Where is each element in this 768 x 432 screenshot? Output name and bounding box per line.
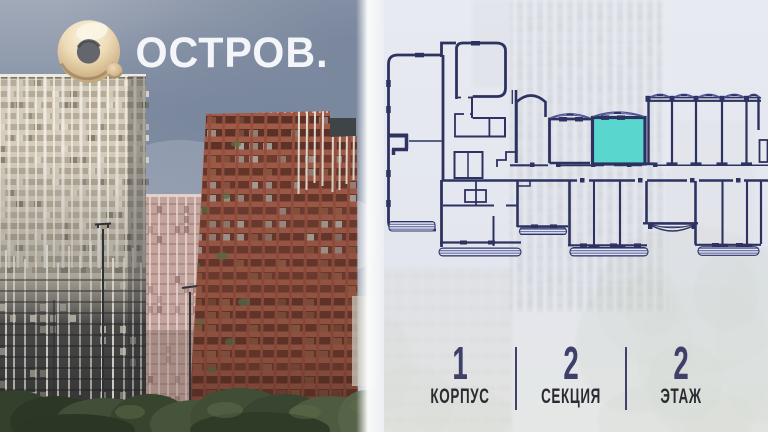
svg-text:ОСТРОВ.: ОСТРОВ. — [136, 29, 329, 77]
